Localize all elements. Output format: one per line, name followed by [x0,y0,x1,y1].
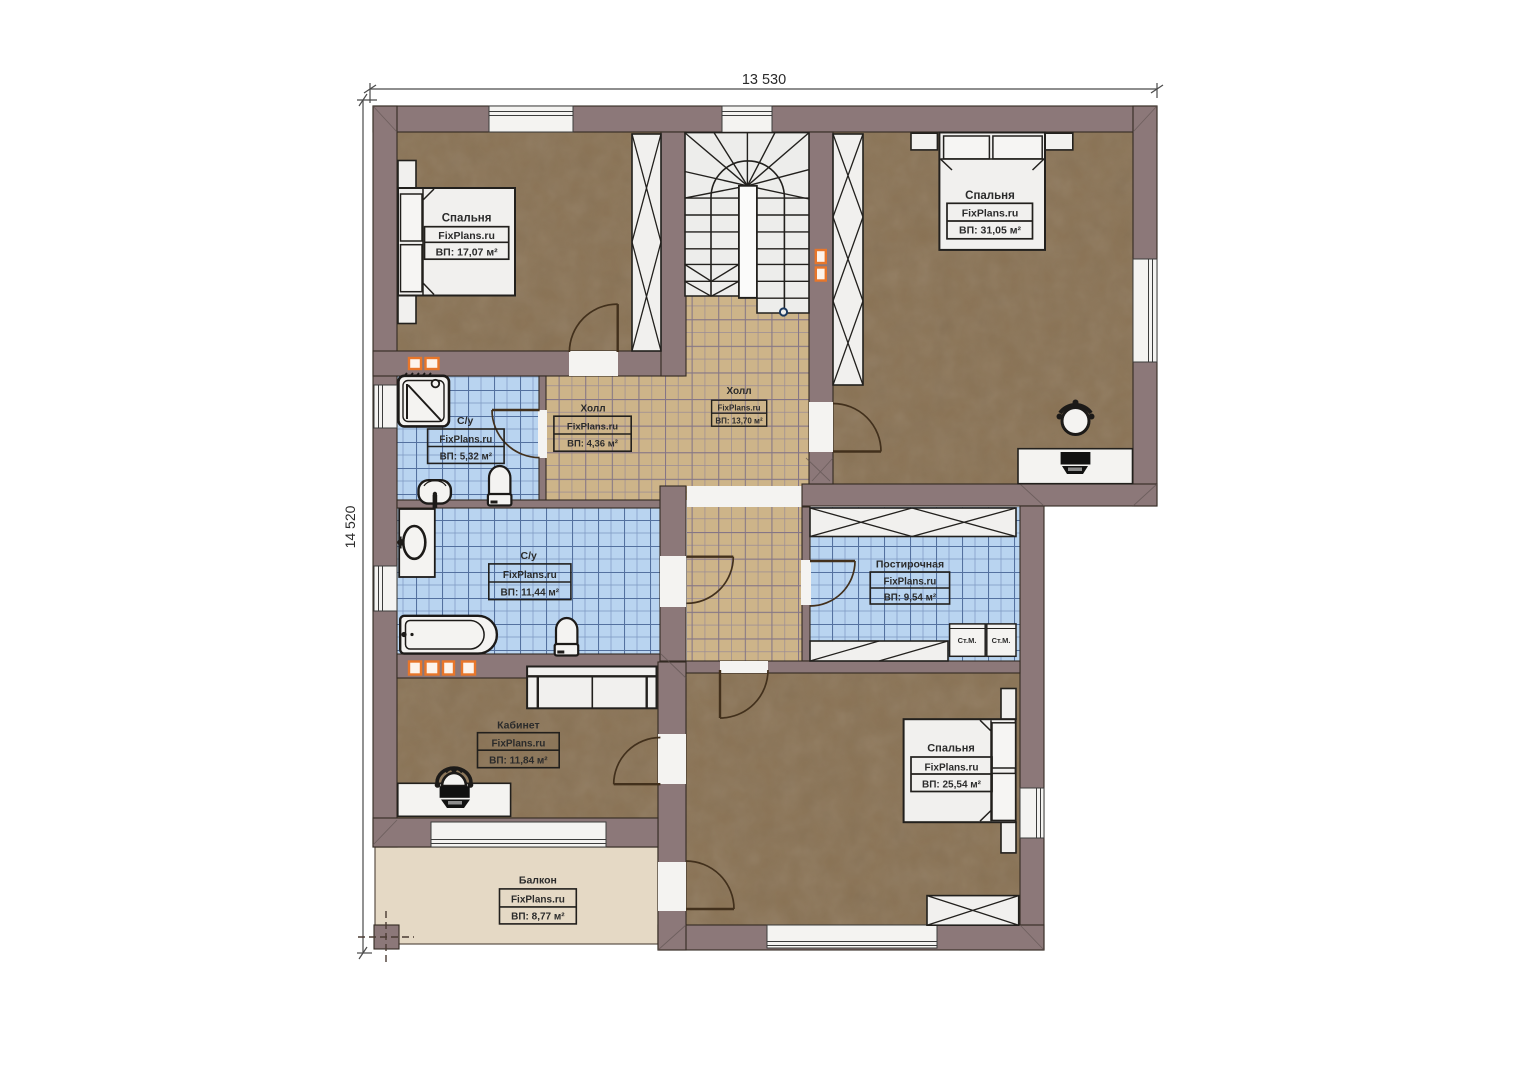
svg-text:ВП: 4,36 м²: ВП: 4,36 м² [567,439,618,450]
svg-text:13 530: 13 530 [742,72,786,88]
svg-text:Холл: Холл [580,404,605,415]
svg-text:Ст.М.: Ст.М. [992,636,1011,645]
svg-text:FixPlans.ru: FixPlans.ru [511,895,565,906]
svg-text:FixPlans.ru: FixPlans.ru [925,762,979,773]
svg-text:С/у: С/у [457,415,474,427]
svg-text:FixPlans.ru: FixPlans.ru [962,208,1019,220]
svg-text:ВП: 13,70 м²: ВП: 13,70 м² [715,417,763,426]
svg-text:ВП: 9,54 м²: ВП: 9,54 м² [884,593,937,604]
svg-text:ВП: 11,84 м²: ВП: 11,84 м² [489,756,548,767]
svg-text:FixPlans.ru: FixPlans.ru [439,435,492,446]
svg-text:Спальня: Спальня [927,743,975,755]
svg-text:Балкон: Балкон [519,875,557,887]
svg-text:Ст.М.: Ст.М. [958,636,977,645]
svg-text:ВП: 31,05 м²: ВП: 31,05 м² [959,225,1022,237]
svg-text:FixPlans.ru: FixPlans.ru [883,577,936,588]
svg-text:ВП: 8,77 м²: ВП: 8,77 м² [511,912,565,923]
svg-text:FixPlans.ru: FixPlans.ru [567,422,618,433]
svg-text:ВП: 11,44 м²: ВП: 11,44 м² [501,588,560,599]
svg-text:FixPlans.ru: FixPlans.ru [717,404,760,413]
svg-text:С/у: С/у [521,550,538,562]
svg-text:ВП: 17,07 м²: ВП: 17,07 м² [436,247,499,259]
svg-text:FixPlans.ru: FixPlans.ru [491,738,545,749]
svg-text:FixPlans.ru: FixPlans.ru [503,570,557,581]
svg-text:FixPlans.ru: FixPlans.ru [438,230,495,242]
svg-text:Спальня: Спальня [965,190,1015,202]
svg-text:Кабинет: Кабинет [497,720,540,732]
svg-text:Холл: Холл [726,386,751,397]
svg-text:Спальня: Спальня [442,213,492,225]
svg-text:14 520: 14 520 [342,505,358,548]
svg-text:ВП: 5,32 м²: ВП: 5,32 м² [440,452,493,463]
svg-text:Постирочная: Постирочная [876,559,944,571]
svg-text:ВП: 25,54 м²: ВП: 25,54 м² [922,779,982,790]
